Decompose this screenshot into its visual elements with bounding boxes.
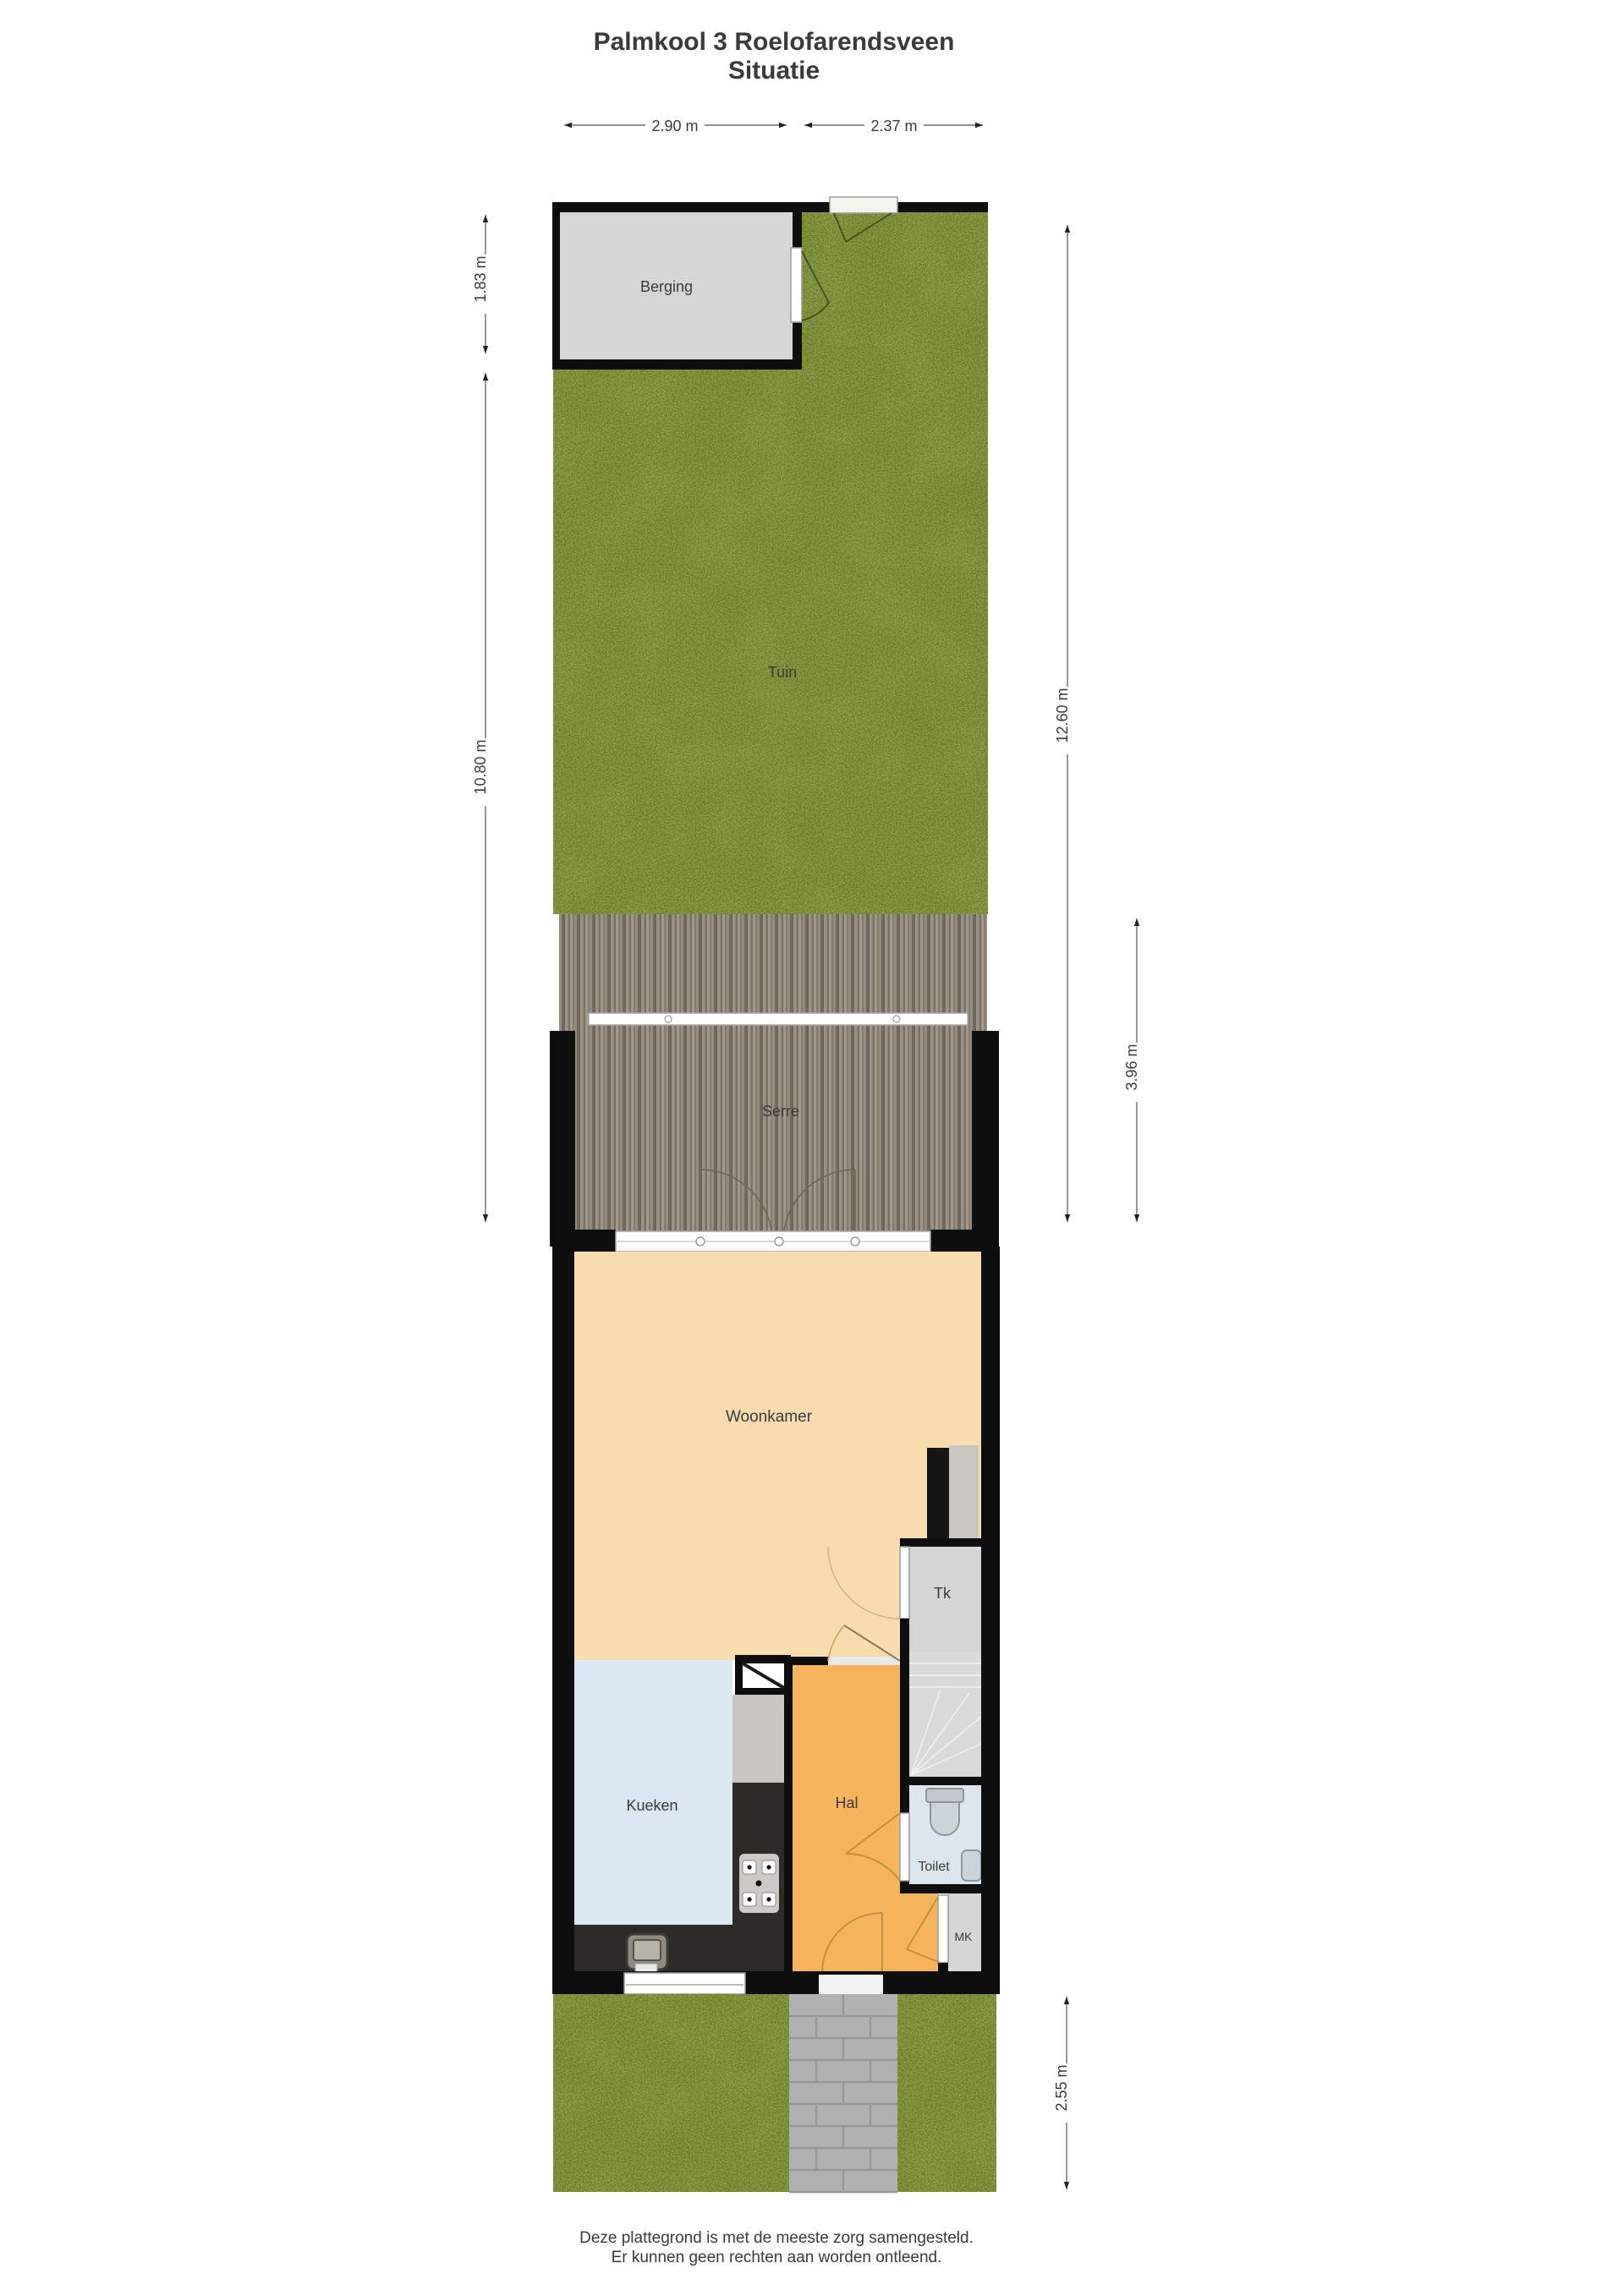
- svg-text:Tk: Tk: [934, 1585, 952, 1602]
- svg-text:10.80 m: 10.80 m: [472, 739, 489, 794]
- svg-text:Serre: Serre: [762, 1103, 799, 1120]
- svg-text:Palmkool 3 Roelofarendsveen: Palmkool 3 Roelofarendsveen: [594, 28, 955, 56]
- svg-text:Toilet: Toilet: [918, 1860, 950, 1874]
- svg-text:1.83 m: 1.83 m: [472, 255, 489, 302]
- svg-text:Situatie: Situatie: [728, 57, 820, 85]
- svg-text:Hal: Hal: [835, 1795, 858, 1811]
- svg-text:MK: MK: [955, 1930, 974, 1943]
- svg-text:12.60 m: 12.60 m: [1054, 688, 1071, 743]
- svg-text:3.96 m: 3.96 m: [1123, 1044, 1140, 1090]
- svg-text:2.37 m: 2.37 m: [870, 118, 917, 134]
- svg-text:Woonkamer: Woonkamer: [726, 1408, 813, 1426]
- svg-text:Tuin: Tuin: [768, 664, 797, 681]
- svg-text:2.90 m: 2.90 m: [651, 118, 698, 134]
- svg-text:Kueken: Kueken: [626, 1797, 678, 1814]
- svg-text:Deze plattegrond is met de mee: Deze plattegrond is met de meeste zorg s…: [579, 2229, 974, 2247]
- svg-text:Er kunnen geen rechten aan wor: Er kunnen geen rechten aan worden ontlee…: [612, 2249, 942, 2266]
- svg-text:2.55 m: 2.55 m: [1053, 2064, 1070, 2111]
- svg-text:Berging: Berging: [640, 278, 693, 295]
